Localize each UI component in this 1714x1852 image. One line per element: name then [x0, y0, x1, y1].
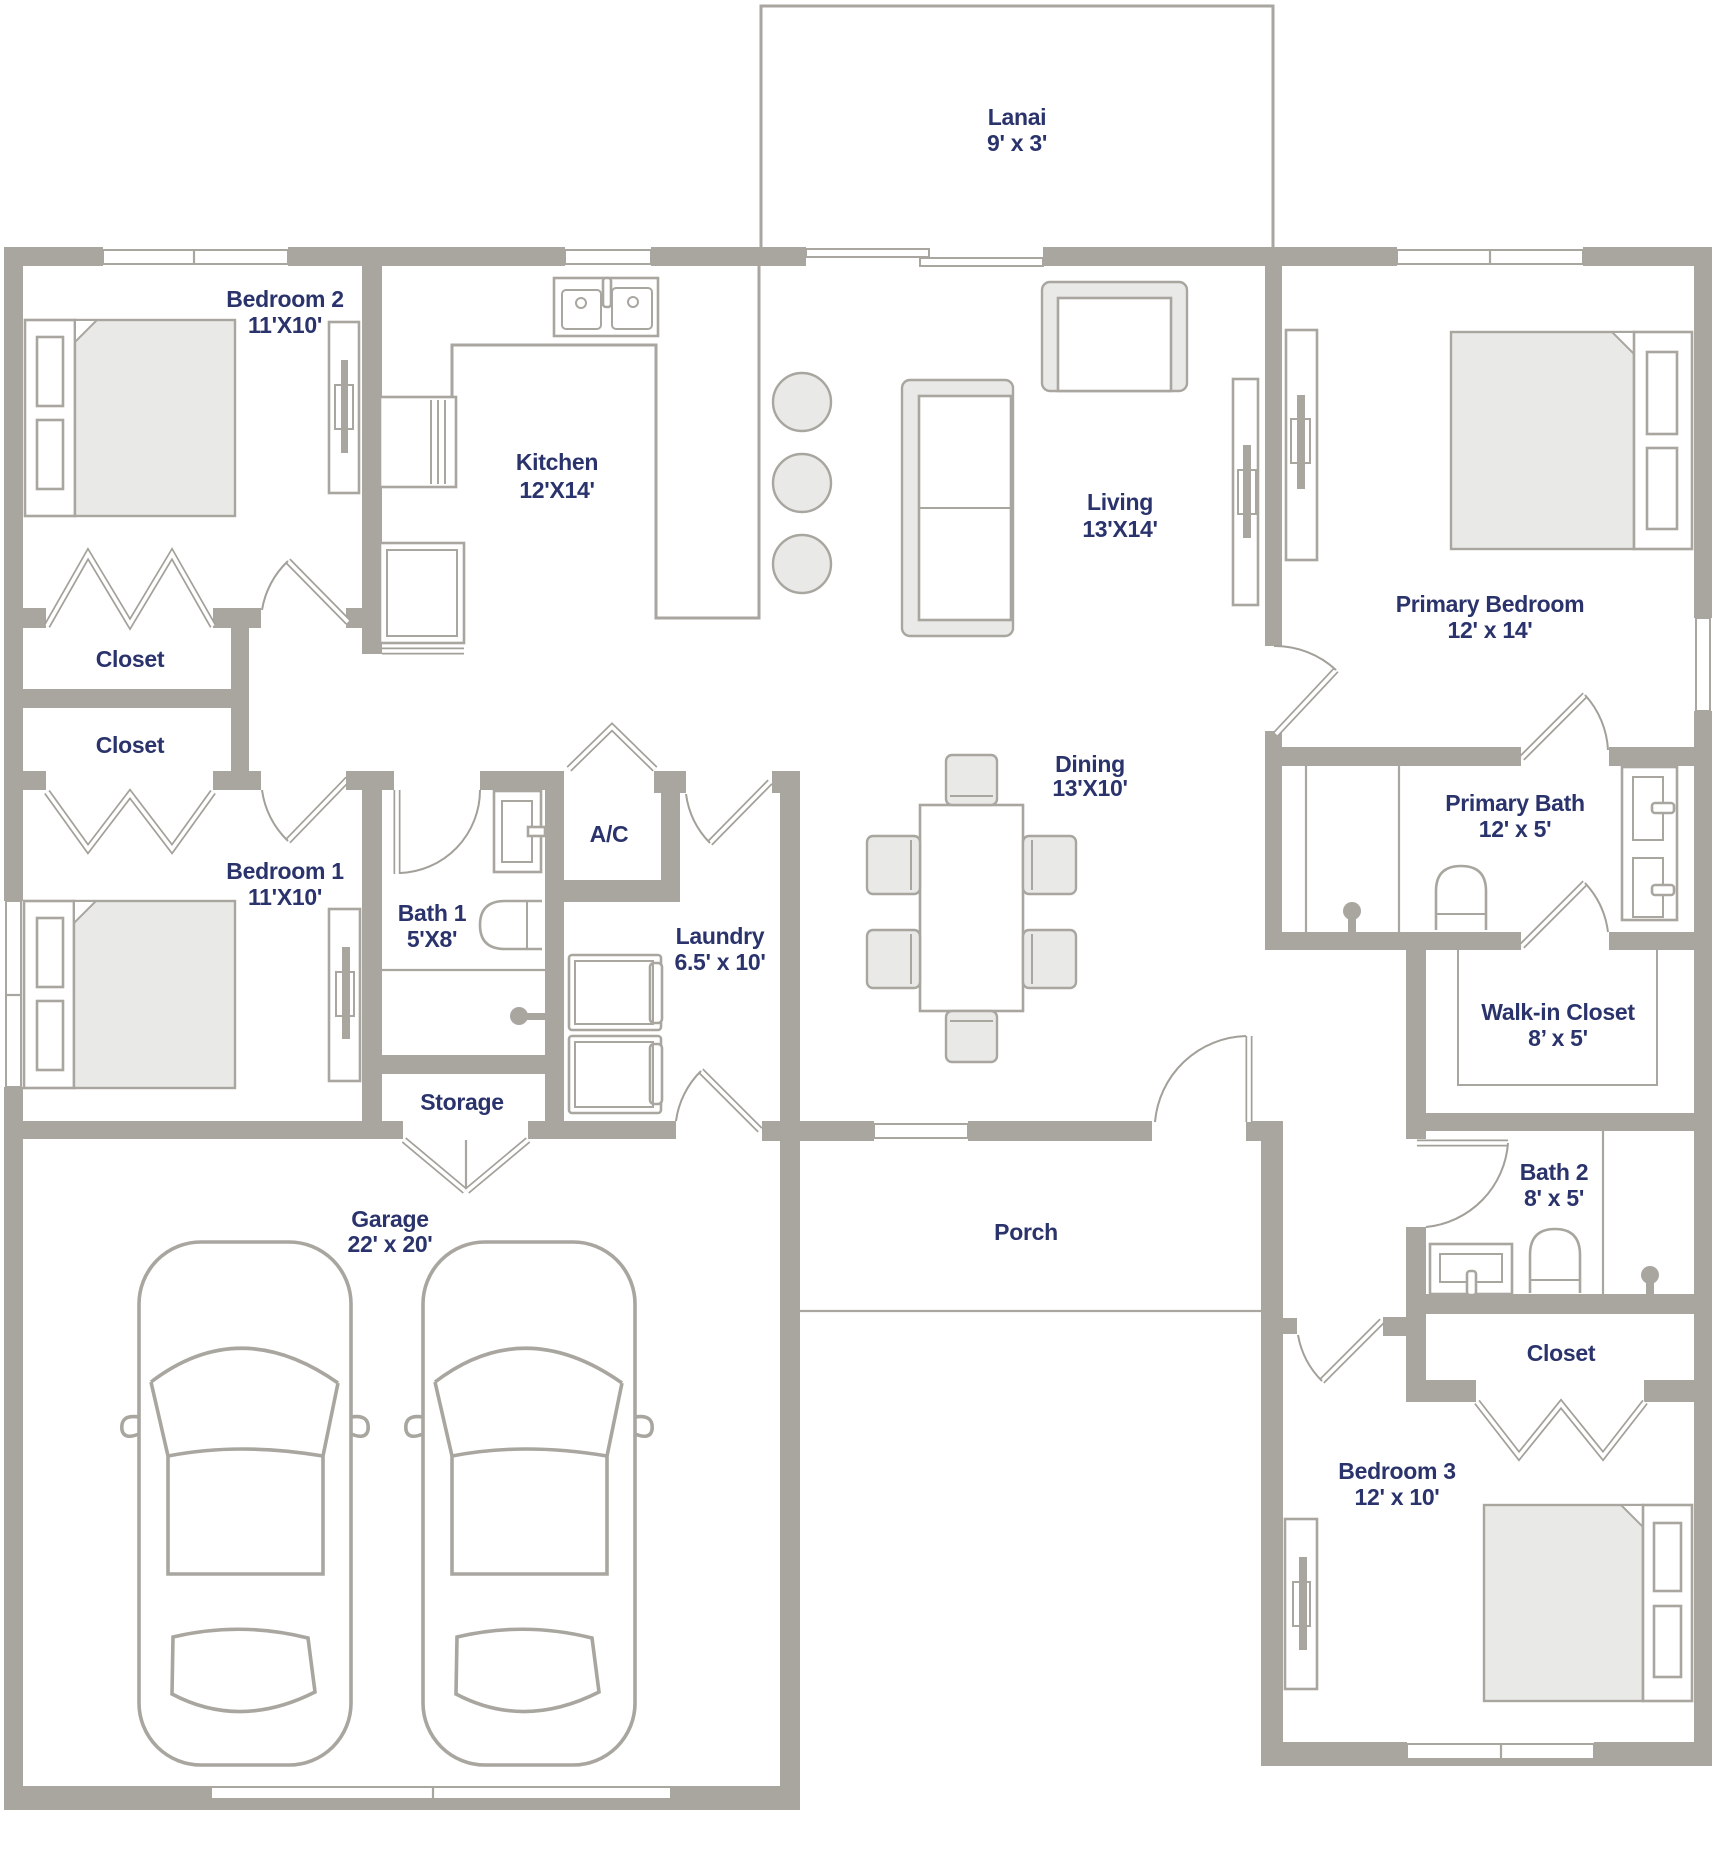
- svg-text:Bedroom 1: Bedroom 1: [226, 858, 344, 884]
- svg-text:8' x 5': 8' x 5': [1524, 1185, 1584, 1211]
- svg-text:Bedroom 3: Bedroom 3: [1338, 1458, 1455, 1484]
- svg-text:5'X8': 5'X8': [407, 926, 457, 952]
- svg-text:Living: Living: [1087, 489, 1153, 515]
- svg-text:8’ x 5': 8’ x 5': [1528, 1025, 1588, 1051]
- svg-text:Storage: Storage: [420, 1089, 504, 1115]
- svg-text:12'X14': 12'X14': [519, 477, 594, 503]
- svg-text:13'X14': 13'X14': [1082, 516, 1157, 542]
- svg-text:A/C: A/C: [590, 821, 629, 847]
- svg-text:Closet: Closet: [96, 732, 165, 758]
- svg-text:11'X10': 11'X10': [248, 884, 322, 910]
- svg-text:Garage: Garage: [351, 1206, 428, 1232]
- svg-text:22' x 20': 22' x 20': [348, 1231, 433, 1257]
- svg-text:9' x 3': 9' x 3': [987, 130, 1047, 156]
- svg-text:Porch: Porch: [994, 1219, 1058, 1245]
- svg-text:13'X10': 13'X10': [1052, 775, 1127, 801]
- svg-text:Primary Bedroom: Primary Bedroom: [1396, 591, 1585, 617]
- svg-text:Dining: Dining: [1055, 751, 1125, 777]
- svg-text:12' x 10': 12' x 10': [1355, 1484, 1440, 1510]
- svg-text:Laundry: Laundry: [676, 923, 765, 949]
- svg-text:Bath 2: Bath 2: [1520, 1159, 1589, 1185]
- svg-text:Lanai: Lanai: [988, 104, 1047, 130]
- svg-text:12' x 14': 12' x 14': [1448, 617, 1533, 643]
- svg-text:Walk-in Closet: Walk-in Closet: [1481, 999, 1635, 1025]
- svg-text:6.5' x 10': 6.5' x 10': [674, 949, 765, 975]
- svg-text:Bath 1: Bath 1: [398, 900, 467, 926]
- svg-text:12' x 5': 12' x 5': [1479, 816, 1552, 842]
- svg-text:Closet: Closet: [1527, 1340, 1596, 1366]
- svg-text:Bedroom 2: Bedroom 2: [226, 286, 343, 312]
- svg-text:Kitchen: Kitchen: [516, 449, 598, 475]
- svg-text:11'X10': 11'X10': [248, 312, 322, 338]
- svg-text:Closet: Closet: [96, 646, 165, 672]
- svg-text:Primary Bath: Primary Bath: [1445, 790, 1585, 816]
